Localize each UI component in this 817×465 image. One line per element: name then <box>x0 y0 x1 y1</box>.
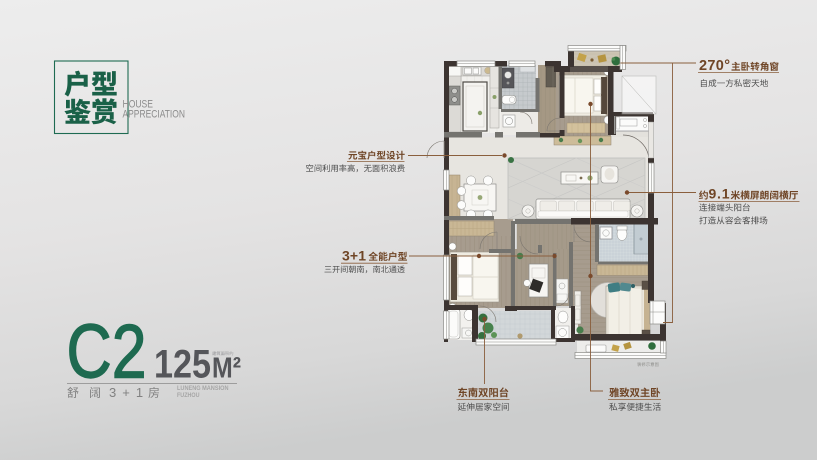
svg-text:9.1: 9.1 <box>709 186 730 202</box>
svg-text:C2: C2 <box>67 310 147 395</box>
svg-text:APPRECIATION: APPRECIATION <box>123 108 186 120</box>
svg-text:270°: 270° <box>699 58 730 74</box>
svg-text:FUZHOU: FUZHOU <box>177 393 200 399</box>
svg-text:M²: M² <box>212 353 241 385</box>
svg-text:3+1: 3+1 <box>342 248 366 264</box>
svg-text:LUNENG MANSION: LUNENG MANSION <box>177 386 229 392</box>
svg-text:3+1: 3+1 <box>109 385 149 400</box>
svg-text:125: 125 <box>154 343 211 387</box>
